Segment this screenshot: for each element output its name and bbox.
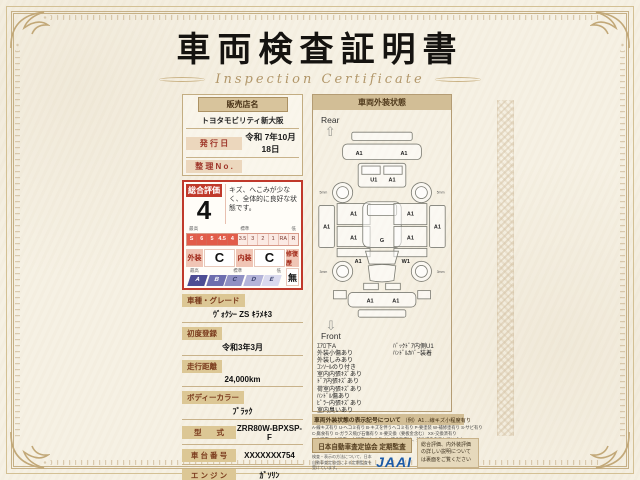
exterior-condition-panel: 車両外装状態 Rear ⇧ xyxy=(312,94,452,412)
scale-segment: 5 xyxy=(207,234,217,245)
car-diagram: Rear ⇧ xyxy=(313,110,451,342)
exterior-grade: C xyxy=(204,249,235,267)
legend-header: 車両外装状態の表示記号について （例）A1…線キズ小程度有り xyxy=(312,414,464,425)
dealer-box: 販売店名 トヨタモビリティ新大阪 発 行 日 令和 7年10月18日 整 理 N… xyxy=(182,94,303,176)
field-label: 車 台 番 号 xyxy=(182,449,236,462)
field-value: ﾌﾞﾗｯｸ xyxy=(182,405,303,420)
diagram-label: A1 xyxy=(400,151,407,157)
jaai-row: 検査・表示の方法について、日本自動車査定協会による定期監査を受けています。 JA… xyxy=(312,454,412,471)
issue-date-label: 発 行 日 xyxy=(186,137,242,150)
diagram-label: A1 xyxy=(350,235,357,241)
grade-label-mid: 標準 xyxy=(233,268,242,274)
scale-segment: R xyxy=(289,234,298,245)
grade-segment: A xyxy=(187,275,207,286)
field-value: 令和3年3月 xyxy=(182,341,303,356)
grade-segment: E xyxy=(262,275,282,286)
evaluation-scale: S654.543.5321RAR xyxy=(186,233,299,246)
vehicle-fields: 車種・グレードｳﾞｫｸｼｰ ZS ｷﾗﾒｷ3初度登録令和3年3月走行距離24,0… xyxy=(182,290,303,480)
field-label: 初度登録 xyxy=(182,327,222,340)
page-title: 車両検査証明書 xyxy=(0,22,640,71)
dealer-label: 販売店名 xyxy=(198,97,288,112)
jaai-badge: 日本自動車査定協会 定期監査 xyxy=(312,438,412,453)
car-exploded-view: A1A1U1A15mm5mmA1A1A1GA1A1A1A1W13mm3mmA1A… xyxy=(315,112,449,319)
subtitle-ornament-right xyxy=(435,77,481,82)
field-value: ｶﾞｿﾘﾝ xyxy=(236,470,303,480)
scale-segment: 3 xyxy=(248,234,258,245)
scale-top-labels: 最高 標準 低 xyxy=(186,224,299,232)
note-item: ﾄﾞｱ内張ｷｽﾞあり xyxy=(317,379,389,386)
condition-notes-col2: ﾊﾞｯｸﾄﾞｱ内側U1ﾊﾝﾄﾞﾙｶﾊﾞｰ装着 xyxy=(393,344,434,415)
field-label: ボディーカラー xyxy=(182,391,244,404)
corner-flourish-icon xyxy=(590,430,632,472)
diagram-label: A1 xyxy=(434,224,441,230)
front-label: Front xyxy=(321,331,341,341)
overall-evaluation-box: 総合評価 4 キズ、へこみが少なく、全体的に良好な状態です。 最高 標準 低 S… xyxy=(182,180,303,290)
evaluation-top: 総合評価 4 キズ、へこみが少なく、全体的に良好な状態です。 xyxy=(186,184,299,224)
subtitle-row: Inspection Certificate xyxy=(0,72,640,87)
dealer-name: トヨタモビリティ新大阪 xyxy=(186,112,299,129)
scale-segment: S xyxy=(187,234,197,245)
issue-date-value: 令和 7年10月18日 xyxy=(242,131,299,155)
diagram-label: A1 xyxy=(407,212,414,218)
grade-segment: B xyxy=(206,275,226,286)
condition-notes: ｴｱﾛ下A外装小傷あり外装しみありｺﾝｿｰﾙのり付き室内内張ｷｽﾞありﾄﾞｱ内張… xyxy=(313,342,451,417)
page-subtitle: Inspection Certificate xyxy=(215,72,424,87)
exterior-panel-title: 車両外装状態 xyxy=(313,95,451,110)
field-row: 車 台 番 号XXXXXXX754 xyxy=(182,446,303,465)
edge-ornament-right xyxy=(620,42,625,438)
diagram-label: A1 xyxy=(356,151,363,157)
condition-notes-col1: ｴｱﾛ下A外装小傷あり外装しみありｺﾝｿｰﾙのり付き室内内張ｷｽﾞありﾄﾞｱ内張… xyxy=(317,344,389,415)
field-label: 走行距離 xyxy=(182,360,222,373)
legend-example: （例）A1…線キズ小程度有り xyxy=(402,418,471,424)
field-value: 24,000km xyxy=(182,374,303,387)
diagram-label: A1 xyxy=(323,224,330,230)
grade-scale: ABCDE xyxy=(186,275,285,286)
edge-ornament-top xyxy=(42,15,598,20)
field-row: エ ン ジ ンｶﾞｿﾘﾝ xyxy=(182,466,303,480)
scale-segment: 1 xyxy=(269,234,279,245)
grade-segment: C xyxy=(224,275,244,286)
interior-grade: C xyxy=(254,249,285,267)
diagram-label: G xyxy=(380,238,384,244)
field-label: 型 式 xyxy=(182,426,236,439)
grade-label-high: 最高 xyxy=(190,268,199,274)
note-item: ﾋﾟﾗｰ内張ｷｽﾞあり xyxy=(317,401,389,408)
field-label: エ ン ジ ン xyxy=(182,469,236,480)
ref-no-label: 整 理 N o . xyxy=(186,160,242,173)
braid-ornament xyxy=(497,100,514,436)
field-row: 型 式ZRR80W-BPXSP-F xyxy=(182,421,303,445)
diagram-label: A1 xyxy=(389,178,396,184)
field-label: 車種・グレード xyxy=(182,294,245,307)
diagram-label: A1 xyxy=(350,212,357,218)
diagram-label: A1 xyxy=(367,299,374,305)
scale-segment: RA xyxy=(279,234,289,245)
grade-segment: D xyxy=(243,275,263,286)
field-value: ｳﾞｫｸｼｰ ZS ｷﾗﾒｷ3 xyxy=(182,308,303,323)
footer-right: 日本自動車査定協会 定期監査 検査・表示の方法について、日本自動車査定協会による… xyxy=(312,438,479,471)
diagram-label: A1 xyxy=(355,259,362,265)
note-item: 荷室内張ｷｽﾞあり xyxy=(317,387,389,394)
back-side-note: 総合評価、内外装評価の詳しい説明については裏面をご覧ください xyxy=(417,438,479,468)
jaai-note: 検査・表示の方法について、日本自動車査定協会による定期監査を受けています。 xyxy=(312,454,373,471)
scale-label-high: 最高 xyxy=(189,226,198,232)
field-value: XXXXXXX754 xyxy=(236,451,303,460)
diagram-label: W1 xyxy=(402,259,410,265)
diagram-label: A1 xyxy=(392,299,399,305)
scale-segment: 6 xyxy=(197,234,207,245)
diagram-label: U1 xyxy=(370,178,377,184)
scale-label-mid: 標準 xyxy=(240,226,249,232)
grade-scale-labels: 最高 標準 低 xyxy=(186,268,285,274)
certificate-sheet: 車両検査証明書 Inspection Certificate 販売店名 トヨタモ… xyxy=(0,0,640,480)
repair-history-value: 無 xyxy=(286,268,299,286)
edge-ornament-left xyxy=(15,42,20,438)
grade-grid: 外装 C 内装 C 修復歴 最高 標準 低 無 ABCDE xyxy=(186,249,299,286)
diagram-label: 3mm xyxy=(320,270,328,274)
evaluation-score: 4 xyxy=(186,197,222,224)
diagram-label: 5mm xyxy=(320,191,328,195)
scale-segment: 4.5 xyxy=(218,234,228,245)
evaluation-comment: キズ、へこみが少なく、全体的に良好な状態です。 xyxy=(225,184,299,224)
ref-no-row: 整 理 N o . xyxy=(186,158,299,175)
interior-label: 内装 xyxy=(236,249,253,267)
grade-label-low: 低 xyxy=(277,268,281,274)
repair-history-label: 修復歴 xyxy=(286,249,299,267)
scale-label-low: 低 xyxy=(291,226,296,232)
diagram-label: 3mm xyxy=(437,270,445,274)
jaai-box: 日本自動車査定協会 定期監査 検査・表示の方法について、日本自動車査定協会による… xyxy=(312,438,412,471)
legend-title: 車両外装状態の表示記号について xyxy=(314,418,401,424)
subtitle-ornament-left xyxy=(159,77,205,82)
exterior-label: 外装 xyxy=(186,249,203,267)
diagram-label: 5mm xyxy=(437,191,445,195)
field-value: ZRR80W-BPXSP-F xyxy=(236,424,303,442)
diagram-label: A1 xyxy=(407,235,414,241)
note-item: ﾊﾝﾄﾞﾙｶﾊﾞｰ装着 xyxy=(393,351,434,358)
evaluation-score-block: 総合評価 4 xyxy=(186,184,222,224)
corner-flourish-icon xyxy=(8,430,50,472)
front-direction: ⇩ Front xyxy=(321,319,341,341)
scale-segment: 4 xyxy=(228,234,238,245)
left-column: 販売店名 トヨタモビリティ新大阪 発 行 日 令和 7年10月18日 整 理 N… xyxy=(182,94,303,480)
scale-segment: 2 xyxy=(258,234,268,245)
jaai-logo: JAAI xyxy=(376,454,412,470)
note-item: ﾊﾝﾄﾞﾙ傷あり xyxy=(317,394,389,401)
scale-segment: 3.5 xyxy=(238,234,248,245)
issue-date-row: 発 行 日 令和 7年10月18日 xyxy=(186,129,299,158)
